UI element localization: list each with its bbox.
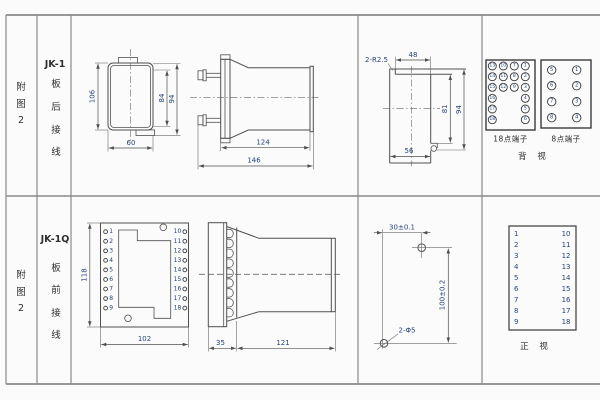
dim-121: 121 bbox=[238, 312, 336, 352]
terminal-number: 11 bbox=[500, 73, 506, 79]
terminal-circle bbox=[183, 297, 187, 301]
terminal-circle bbox=[183, 230, 187, 234]
terminal-circle bbox=[183, 249, 187, 253]
figure-page: 附 图 2 JK-1 板 后 接 线 106 84 94 bbox=[0, 0, 600, 400]
terminal-number: 14 bbox=[174, 266, 182, 273]
fig-label-char: 图 bbox=[16, 99, 26, 110]
terminal-circle bbox=[104, 249, 108, 253]
terminal-number: 15 bbox=[174, 276, 182, 283]
model-label: JK-1Q bbox=[40, 234, 70, 245]
table-cell-right: 14 bbox=[562, 274, 571, 282]
terminal-number: 8 bbox=[550, 115, 553, 121]
dim-text: 35 bbox=[216, 339, 225, 347]
drilling-plan: 30±0.1 100±0.2 2-Φ5 bbox=[374, 224, 457, 350]
dim-text: 94 bbox=[168, 94, 176, 103]
mounting-hole bbox=[125, 315, 132, 322]
terminal-number: 3 bbox=[524, 84, 527, 90]
mounting-screw bbox=[198, 115, 221, 126]
dim-text: 30±0.1 bbox=[389, 224, 415, 232]
table-cell-left: 8 bbox=[514, 307, 518, 315]
terminal-number: 13 bbox=[489, 63, 495, 69]
terminal-number: 12 bbox=[500, 84, 506, 90]
jk1-rear-view: 106 84 94 60 bbox=[89, 49, 181, 152]
terminal-number: 6 bbox=[550, 83, 553, 89]
terminal-number: 2 bbox=[109, 238, 113, 245]
terminal-number: 3 bbox=[575, 99, 578, 105]
terminal-circle bbox=[183, 268, 187, 272]
table-cell-right: 13 bbox=[562, 263, 571, 271]
fig-label-char: 附 bbox=[16, 269, 26, 281]
dim-146: 146 bbox=[198, 125, 313, 170]
terminal-circle bbox=[104, 297, 108, 301]
terminal-number: 6 bbox=[109, 276, 113, 283]
terminal-circle bbox=[183, 287, 187, 291]
dim-text: 60 bbox=[127, 139, 136, 147]
table-cell-left: 7 bbox=[514, 296, 518, 304]
terminal-number: 8 bbox=[109, 295, 113, 302]
jk1q-front-view: 123456789101112131415161718 118 102 bbox=[80, 223, 188, 348]
terminal-number: 5 bbox=[524, 106, 527, 112]
terminal-circle bbox=[104, 258, 108, 262]
terminal-number: 7 bbox=[109, 286, 113, 293]
terminal-screw bbox=[227, 229, 234, 237]
fig-label-char: 图 bbox=[16, 287, 26, 298]
dim-106: 106 bbox=[89, 63, 109, 130]
terminal-circle bbox=[183, 239, 187, 243]
wiring-char: 接 bbox=[51, 307, 61, 319]
terminal-number: 6 bbox=[524, 116, 527, 122]
dim-81: 81 bbox=[437, 75, 452, 143]
fig-label-char: 2 bbox=[18, 115, 24, 126]
terminal-number: 9 bbox=[109, 305, 113, 312]
terminal-number: 3 bbox=[109, 247, 113, 254]
terminal-number: 13 bbox=[174, 257, 182, 264]
terminal-number: 1 bbox=[109, 228, 113, 235]
table-cell-right: 17 bbox=[562, 307, 571, 315]
terminal-circle bbox=[104, 239, 108, 243]
terminal-number: 7 bbox=[550, 99, 553, 105]
terminal-table-rows: 110211312413514615716817918 bbox=[514, 230, 571, 326]
mounting-hole bbox=[160, 224, 167, 231]
terminal-number: 5 bbox=[550, 67, 553, 73]
terminal-screw bbox=[227, 309, 234, 317]
terminal-number: 16 bbox=[489, 95, 495, 101]
terminal-screw bbox=[227, 269, 234, 277]
terminal-grid-8: 56781234 bbox=[548, 66, 581, 122]
terminal-circle bbox=[104, 306, 108, 310]
dim-text: 106 bbox=[89, 89, 97, 103]
wiring-char: 前 bbox=[51, 284, 61, 296]
terminal-number: 10 bbox=[174, 228, 182, 235]
dim-text: 84 bbox=[158, 93, 166, 102]
dim-text: 118 bbox=[80, 268, 88, 281]
fig-label-char: 附 bbox=[16, 81, 26, 93]
dim-text: 94 bbox=[455, 105, 463, 114]
dim-118: 118 bbox=[80, 223, 100, 327]
wiring-char: 后 bbox=[51, 102, 61, 113]
terminal-number: 1 bbox=[575, 67, 578, 73]
table-cell-left: 9 bbox=[514, 318, 518, 326]
terminal-number: 17 bbox=[174, 295, 182, 302]
table-cell-left: 4 bbox=[514, 263, 519, 271]
table-cell-right: 15 bbox=[562, 285, 571, 293]
wiring-char: 板 bbox=[51, 262, 61, 274]
terminal-number: 12 bbox=[174, 247, 182, 254]
terminal-number: 5 bbox=[109, 266, 113, 273]
terminal-number: 18 bbox=[174, 305, 182, 312]
terminal-screws bbox=[227, 229, 234, 317]
terminal-screw bbox=[227, 239, 234, 247]
front-view-label: 正 视 bbox=[520, 341, 552, 352]
rear-terminals: 131415161718101112789123456 18点端子 567812… bbox=[486, 60, 591, 162]
table-cell-right: 11 bbox=[562, 241, 571, 249]
terminal-number: 17 bbox=[489, 106, 495, 112]
terminal-number: 9 bbox=[513, 84, 516, 90]
rear-view-label: 背 视 bbox=[518, 151, 550, 162]
dim-56: 56 bbox=[391, 147, 430, 156]
terminal-screw bbox=[227, 259, 234, 267]
terminal-circle bbox=[104, 278, 108, 282]
terminal-circle bbox=[183, 278, 187, 282]
terminal-screw bbox=[227, 249, 234, 257]
terminal-circle bbox=[104, 287, 108, 291]
model-label: JK-1 bbox=[44, 59, 66, 70]
terminal-grid-18: 131415161718101112789123456 bbox=[488, 62, 529, 124]
terminal-number: 2 bbox=[524, 73, 527, 79]
terminal-number: 11 bbox=[174, 238, 182, 245]
dim-text: 121 bbox=[276, 339, 289, 347]
terminal-circle bbox=[104, 230, 108, 234]
top-row-header: 附 图 2 JK-1 板 后 接 线 bbox=[16, 59, 65, 158]
table-cell-left: 6 bbox=[514, 285, 519, 293]
terminal-circle bbox=[104, 268, 108, 272]
terminal-circle bbox=[183, 306, 187, 310]
dim-text: 2-Φ5 bbox=[399, 327, 416, 335]
fig-label-char: 2 bbox=[18, 303, 24, 314]
mounting-screw bbox=[198, 70, 221, 81]
terminal-block-top bbox=[119, 58, 138, 64]
terminal-number: 16 bbox=[174, 286, 182, 293]
terminal-number: 2 bbox=[575, 83, 578, 89]
terminal-number: 7 bbox=[513, 63, 516, 69]
dim-text: 48 bbox=[409, 51, 418, 59]
terminal-block-bottom bbox=[136, 130, 155, 136]
terminal-number: 14 bbox=[489, 73, 495, 79]
dim-text: 124 bbox=[256, 138, 270, 146]
dim-35: 35 bbox=[208, 321, 236, 352]
front-terminal-table: 110211312413514615716817918 正 视 bbox=[509, 226, 576, 352]
dim-102: 102 bbox=[101, 327, 189, 348]
terminal-number: 18 bbox=[489, 116, 495, 122]
dim-text: 102 bbox=[138, 335, 151, 343]
dim-text: 56 bbox=[405, 147, 414, 155]
table-cell-left: 5 bbox=[514, 274, 518, 282]
dim-text: 146 bbox=[247, 157, 261, 165]
table-cell-right: 16 bbox=[562, 296, 571, 304]
table-cell-left: 1 bbox=[514, 230, 518, 238]
dim-text: 81 bbox=[441, 104, 449, 113]
cutout-tab bbox=[431, 143, 438, 151]
terminal-8-label: 8点端子 bbox=[551, 134, 580, 144]
jk1-side-view: 124 146 bbox=[190, 55, 320, 170]
terminal-number: 1 bbox=[524, 63, 527, 69]
dim-124: 124 bbox=[221, 132, 310, 151]
table-cell-left: 3 bbox=[514, 252, 518, 260]
dim-text: 2-R2.5 bbox=[365, 56, 388, 64]
terminal-number: 15 bbox=[489, 84, 495, 90]
wiring-char: 板 bbox=[51, 78, 61, 90]
dim-48: 48 bbox=[395, 51, 430, 75]
table-cell-right: 10 bbox=[562, 230, 571, 238]
terminal-screw bbox=[227, 279, 234, 287]
terminal-number: 10 bbox=[500, 63, 506, 69]
terminal-18-label: 18点端子 bbox=[493, 134, 528, 144]
table-cell-left: 2 bbox=[514, 241, 518, 249]
wiring-char: 接 bbox=[51, 124, 61, 136]
dim-100: 100±0.2 bbox=[439, 249, 449, 343]
table-cell-right: 12 bbox=[562, 252, 571, 260]
dim-text: 100±0.2 bbox=[439, 280, 447, 310]
terminal-number: 4 bbox=[109, 257, 113, 264]
table-cell-right: 18 bbox=[562, 318, 571, 326]
bottom-row-header: 附 图 2 JK-1Q 板 前 接 线 bbox=[16, 234, 69, 341]
terminal-screw bbox=[227, 289, 234, 297]
panel-cutout-view: 2-R2.5 48 81 94 56 bbox=[365, 51, 466, 167]
note-2-R2-5: 2-R2.5 bbox=[365, 56, 393, 71]
terminal-circle bbox=[183, 258, 187, 262]
jk1q-side-view: 35 121 bbox=[199, 223, 340, 352]
wiring-char: 线 bbox=[51, 146, 61, 158]
terminal-screw bbox=[227, 299, 234, 307]
technical-drawing: 附 图 2 JK-1 板 后 接 线 106 84 94 bbox=[0, 0, 600, 400]
terminal-number: 8 bbox=[513, 73, 516, 79]
terminal-number: 4 bbox=[524, 95, 527, 101]
wiring-char: 线 bbox=[51, 329, 61, 341]
table-grid bbox=[6, 15, 600, 384]
